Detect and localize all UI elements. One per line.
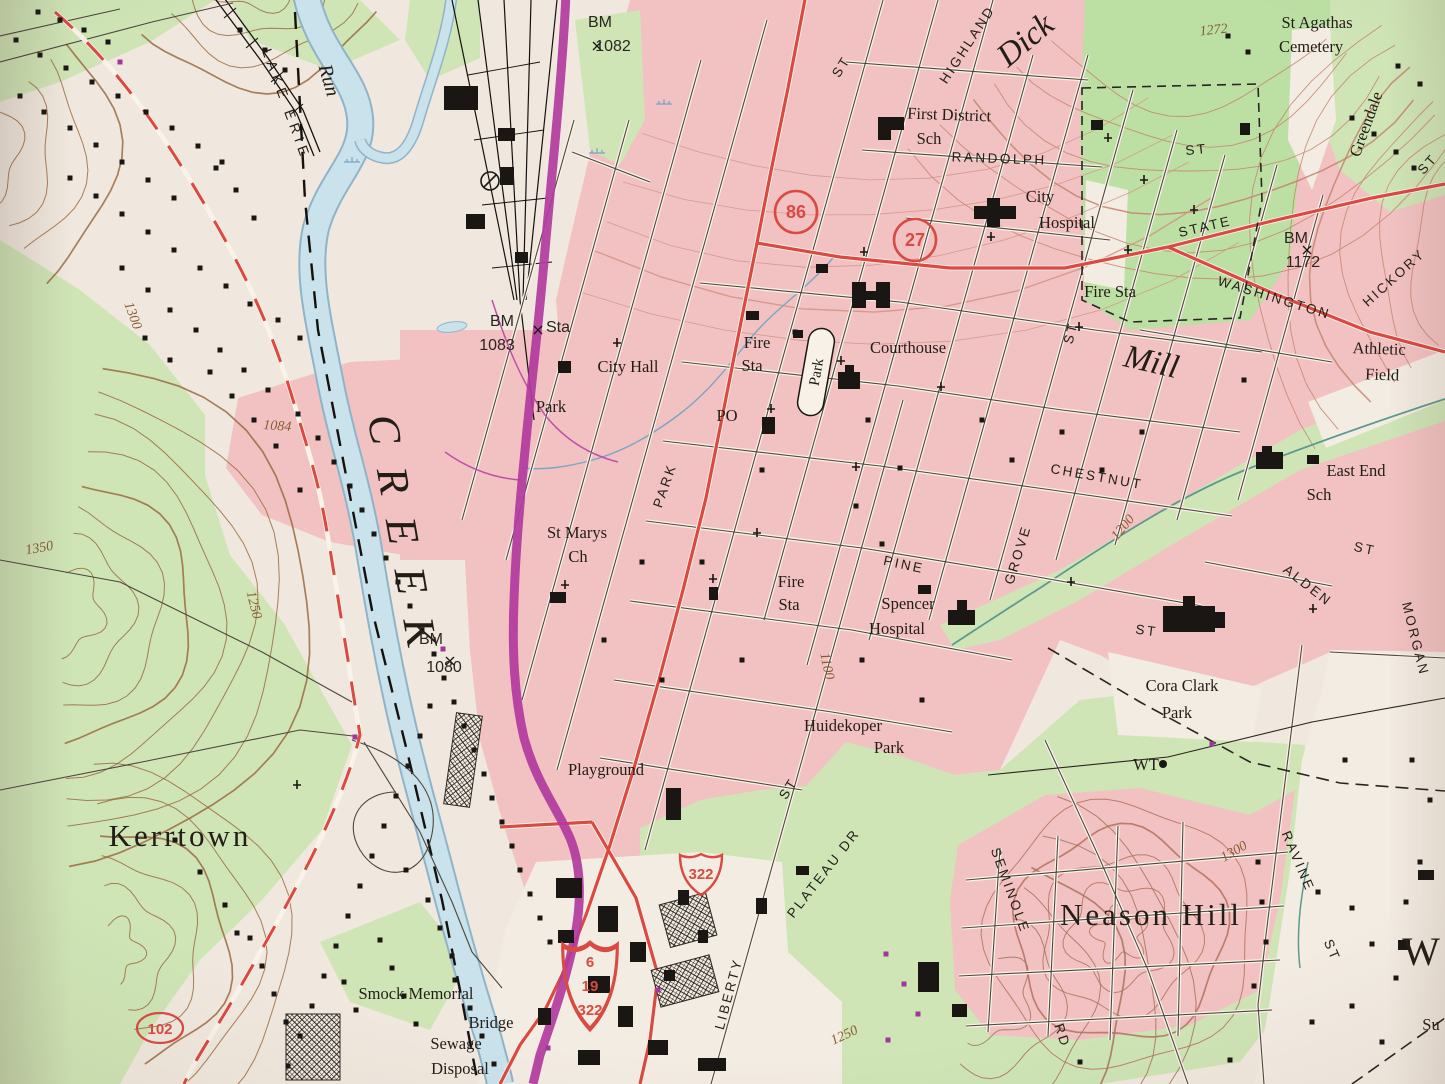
building-dot [854, 504, 859, 509]
building-dot [510, 844, 515, 849]
building [648, 1040, 668, 1055]
building [1183, 596, 1195, 607]
building-dot [1380, 1040, 1385, 1045]
building-dot [793, 330, 798, 335]
building-dot [492, 1062, 497, 1067]
photorevised-building-dot [353, 735, 358, 740]
photorevised-building-dot [656, 988, 661, 993]
building-dot [1418, 860, 1423, 865]
building [878, 128, 891, 140]
building-dot [1256, 860, 1261, 865]
building-dot [378, 938, 383, 943]
building [1307, 455, 1319, 464]
building [1418, 870, 1434, 880]
building [987, 198, 1000, 227]
building-dot [248, 302, 253, 307]
building-dot [490, 796, 495, 801]
map-label-1080: 1080 [426, 659, 462, 676]
building-dot [120, 160, 125, 165]
building-dot [230, 394, 235, 399]
building-dot [920, 698, 925, 703]
building-dot [414, 1022, 419, 1027]
photorevised-building-dot [886, 1038, 891, 1043]
topo-map: 8627322619322102Park BM1082RunLAKE ERIES… [0, 0, 1445, 1084]
building-dot [394, 794, 399, 799]
building-dot [500, 820, 505, 825]
building [550, 592, 566, 603]
building-dot [172, 196, 177, 201]
building-dot [234, 188, 239, 193]
photorevised-building-dot [902, 982, 907, 987]
building-dot [194, 328, 199, 333]
building-dot [342, 980, 347, 985]
building-dot [172, 248, 177, 253]
building-dot [168, 308, 173, 313]
water-tank-dot-icon [1159, 760, 1167, 768]
route-number: 322 [577, 1002, 602, 1019]
building [756, 898, 767, 914]
building-dot [208, 370, 213, 375]
building-dot [235, 931, 240, 936]
building-dot [452, 700, 457, 705]
building-dot [818, 266, 823, 271]
building-dot [94, 143, 99, 148]
building-dot [146, 178, 151, 183]
map-label-east-end: East End [1326, 461, 1386, 480]
map-canvas: 8627322619322102Park BM1082RunLAKE ERIES… [0, 0, 1445, 1084]
building-dot [1350, 906, 1355, 911]
building-dot [1418, 82, 1423, 87]
map-label-athletic: Athletic [1352, 338, 1406, 359]
building-dot [472, 748, 477, 753]
building-dot [242, 368, 247, 373]
building [918, 962, 939, 992]
building-dot [1428, 798, 1433, 803]
building-dot [1370, 942, 1375, 947]
building [762, 417, 775, 434]
building-dot [346, 914, 351, 919]
map-label-fire: Fire [744, 333, 771, 352]
map-label-1083: 1083 [479, 337, 515, 354]
building-dot [36, 10, 41, 15]
building-dot [120, 266, 125, 271]
route-number: 27 [905, 230, 925, 250]
building [498, 128, 515, 141]
building-dot [266, 388, 271, 393]
building-dot [372, 532, 377, 537]
building-dot [898, 466, 903, 471]
map-label-huidekoper: Huidekoper [804, 716, 882, 735]
building-dot [68, 126, 73, 131]
building-dot [700, 560, 705, 565]
map-label-hospital: Hospital [1039, 213, 1095, 232]
building-dot [310, 1004, 315, 1009]
building-dot [248, 936, 253, 941]
building-dot [462, 724, 467, 729]
map-label-field: Field [1365, 364, 1400, 384]
map-label-sta: Sta [741, 356, 763, 375]
building-dot [260, 964, 265, 969]
building-dot [220, 160, 225, 165]
building [838, 372, 860, 389]
map-label-sta: Sta [778, 595, 800, 614]
building [698, 930, 708, 943]
building-dot [198, 266, 203, 271]
building-dot [426, 898, 431, 903]
photorevised-building-dot [884, 952, 889, 957]
building-dot [404, 868, 409, 873]
building [1163, 606, 1215, 632]
map-label-park: Park [536, 397, 567, 416]
building [556, 878, 582, 898]
building-dot [1140, 430, 1145, 435]
building [558, 930, 574, 943]
building-dot [1264, 940, 1269, 945]
building [948, 610, 975, 625]
building-dot [284, 1020, 289, 1025]
building-dot [1242, 378, 1247, 383]
building-dot [358, 884, 363, 889]
building-dot [980, 418, 985, 423]
map-label-st-marys: St Marys [547, 523, 607, 542]
building-dot [860, 658, 865, 663]
building-dot [1396, 64, 1401, 69]
building [666, 788, 681, 820]
building-dot [218, 348, 223, 353]
map-label-playground: Playground [568, 760, 645, 779]
building [952, 1004, 967, 1017]
building [678, 890, 689, 905]
building-dot [450, 954, 455, 959]
map-label-park: Park [1162, 703, 1193, 722]
building-dot [866, 418, 871, 423]
map-label-cora-clark: Cora Clark [1146, 676, 1220, 695]
building [598, 906, 618, 932]
map-label-bm: BM [490, 313, 514, 330]
building [538, 1008, 551, 1025]
photorevised-building-dot [546, 1046, 551, 1051]
map-label-smock-memorial: Smock Memorial [358, 984, 473, 1003]
map-label-po: PO [716, 406, 737, 425]
map-label-cemetery: Cemetery [1279, 37, 1344, 56]
building-dot [82, 28, 87, 33]
map-label-sewage: Sewage [430, 1034, 481, 1053]
building-dot [1394, 150, 1399, 155]
building-dot [1310, 1020, 1315, 1025]
building-dot [146, 288, 151, 293]
route-number: 102 [147, 1021, 172, 1038]
map-label-courthouse: Courthouse [870, 338, 946, 357]
building-dot [640, 560, 645, 565]
building-dot [214, 166, 219, 171]
map-label-1272: 1272 [1199, 22, 1228, 40]
building-dot [68, 176, 73, 181]
map-label-city-hall: City Hall [598, 357, 659, 376]
map-label-sch: Sch [917, 129, 943, 148]
building [558, 361, 571, 373]
building-dot [298, 1034, 303, 1039]
building [1262, 446, 1272, 453]
building-dot [1010, 458, 1015, 463]
building-dot [360, 508, 365, 513]
building-dot [286, 1064, 291, 1069]
map-label-st: ST [1135, 622, 1159, 640]
building-dot [316, 436, 321, 441]
map-label-1084: 1084 [263, 418, 292, 435]
building-dot [322, 974, 327, 979]
map-label-disposal: Disposal [431, 1059, 489, 1078]
photorevised-building-dot [1210, 742, 1215, 747]
building-dot [332, 460, 337, 465]
building-dot [382, 824, 387, 829]
building-dot [1060, 430, 1065, 435]
hatched-building [286, 1014, 340, 1080]
building-dot [602, 638, 607, 643]
building-dot [120, 212, 125, 217]
building [698, 1058, 726, 1071]
building-dot [1343, 758, 1348, 763]
map-label-st-agathas: St Agathas [1281, 13, 1352, 32]
building [876, 282, 890, 308]
building-dot [538, 916, 543, 921]
route-number: 19 [582, 978, 599, 995]
building-dot [880, 542, 885, 547]
building-dot [106, 40, 111, 45]
building [1256, 452, 1283, 469]
building-dot [238, 28, 243, 33]
building [845, 365, 854, 373]
building-dot [143, 336, 148, 341]
building-dot [223, 903, 228, 908]
building-dot [276, 318, 281, 323]
building-dot [760, 468, 765, 473]
map-label-park: Park [874, 738, 905, 757]
building [746, 311, 759, 320]
building [862, 291, 878, 300]
building-dot [518, 868, 523, 873]
building-dot [1394, 976, 1399, 981]
building [578, 1050, 600, 1065]
building [1091, 120, 1103, 130]
building [796, 866, 809, 875]
map-label-kerrtown: Kerrtown [109, 818, 252, 853]
building-dot [116, 94, 121, 99]
building-dot [38, 53, 43, 58]
building-dot [296, 412, 301, 417]
building-dot [660, 678, 665, 683]
building-dot [348, 484, 353, 489]
route-number: 86 [786, 202, 806, 222]
building [918, 585, 931, 594]
route-number: 322 [688, 866, 713, 883]
building [500, 167, 514, 185]
map-label-1172: 1172 [1286, 254, 1321, 271]
map-label-spencer: Spencer [881, 594, 935, 613]
map-label-bm: BM [1284, 230, 1308, 247]
map-label-fire: Fire [778, 572, 805, 591]
building-dot [90, 80, 95, 85]
building [664, 970, 675, 981]
building-dot [1078, 1060, 1083, 1065]
map-label-sch: Sch [1307, 485, 1333, 504]
building-dot [334, 944, 339, 949]
building-dot [170, 126, 175, 131]
photorevised-building-dot [118, 60, 123, 65]
map-label-st: ST [1185, 141, 1209, 158]
building-dot [272, 992, 277, 997]
building-dot [548, 940, 553, 945]
building-dot [196, 144, 201, 149]
building [444, 86, 478, 110]
building-dot [94, 194, 99, 199]
building-dot [418, 734, 423, 739]
map-label-hospital: Hospital [869, 619, 925, 638]
building-dot [252, 216, 257, 221]
building-dot [1228, 1058, 1233, 1063]
building-dot [1316, 890, 1321, 895]
building-dot [1260, 900, 1265, 905]
building [630, 942, 646, 962]
building-dot [1246, 50, 1251, 55]
map-label-wt: WT [1133, 755, 1159, 774]
building [709, 587, 718, 600]
building-dot [1350, 1004, 1355, 1009]
map-label-city: City [1026, 187, 1055, 206]
building [515, 252, 528, 263]
building-dot [740, 658, 745, 663]
building-dot [442, 676, 447, 681]
building-dot [354, 1008, 359, 1013]
building-dot [390, 966, 395, 971]
building-dot [1404, 900, 1409, 905]
building [957, 600, 967, 611]
map-label-w: W [1402, 929, 1440, 974]
building-dot [1410, 758, 1415, 763]
map-label-bridge: Bridge [469, 1013, 514, 1032]
photorevised-building-dot [916, 1012, 921, 1017]
building-dot [14, 38, 19, 43]
building [618, 1006, 633, 1027]
building-dot [274, 444, 279, 449]
building-dot [528, 892, 533, 897]
building-dot [428, 704, 433, 709]
building-dot [58, 18, 63, 23]
building-dot [168, 358, 173, 363]
building-dot [370, 854, 375, 859]
building-dot [64, 66, 69, 71]
building [466, 214, 485, 229]
building [1215, 612, 1225, 628]
building-dot [42, 110, 47, 115]
building-dot [146, 230, 151, 235]
map-label-1082: 1082 [595, 38, 631, 55]
map-label-ch: Ch [568, 547, 588, 566]
map-label-su: Su [1422, 1015, 1439, 1034]
building-dot [18, 94, 23, 99]
building-dot [252, 418, 257, 423]
building-dot [406, 764, 411, 769]
building-dot [1252, 984, 1257, 989]
building-dot [198, 870, 203, 875]
building-dot [1350, 116, 1355, 121]
building-dot [438, 926, 443, 931]
route-number: 6 [586, 954, 594, 971]
map-label-first-district: First District [907, 104, 992, 126]
building-dot [453, 978, 458, 983]
building [1240, 123, 1250, 135]
building-dot [298, 336, 303, 341]
map-label-bm: BM [588, 14, 612, 31]
map-label-bm: BM [419, 631, 443, 648]
building-dot [468, 1006, 473, 1011]
building-dot [224, 284, 229, 289]
map-label-neason-hill: Neason Hill [1060, 897, 1242, 932]
map-label-sta: Sta [546, 319, 570, 336]
building-dot [482, 772, 487, 777]
building-dot [298, 488, 303, 493]
building-dot [144, 110, 149, 115]
map-label-fire-sta: Fire Sta [1084, 282, 1136, 301]
